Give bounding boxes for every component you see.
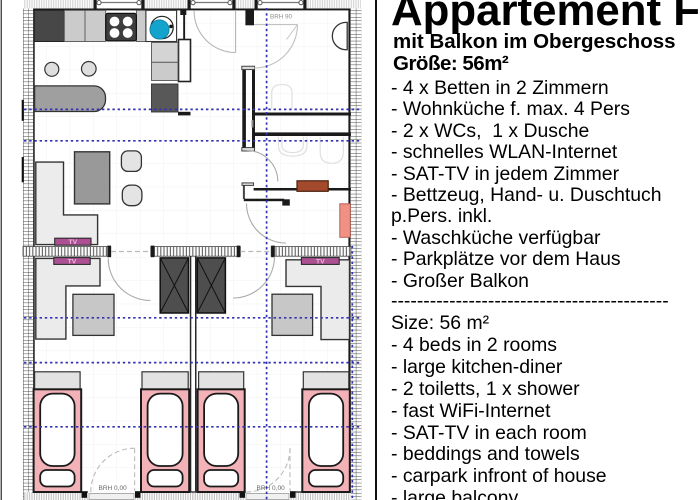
svg-text:BRH 0,00: BRH 0,00 [99,485,128,492]
svg-text:TV: TV [316,258,325,265]
svg-text:TV: TV [68,239,77,246]
svg-text:TV: TV [68,258,77,265]
svg-text:BRH 90: BRH 90 [270,14,293,21]
svg-text:BRH 0,00: BRH 0,00 [257,485,286,492]
